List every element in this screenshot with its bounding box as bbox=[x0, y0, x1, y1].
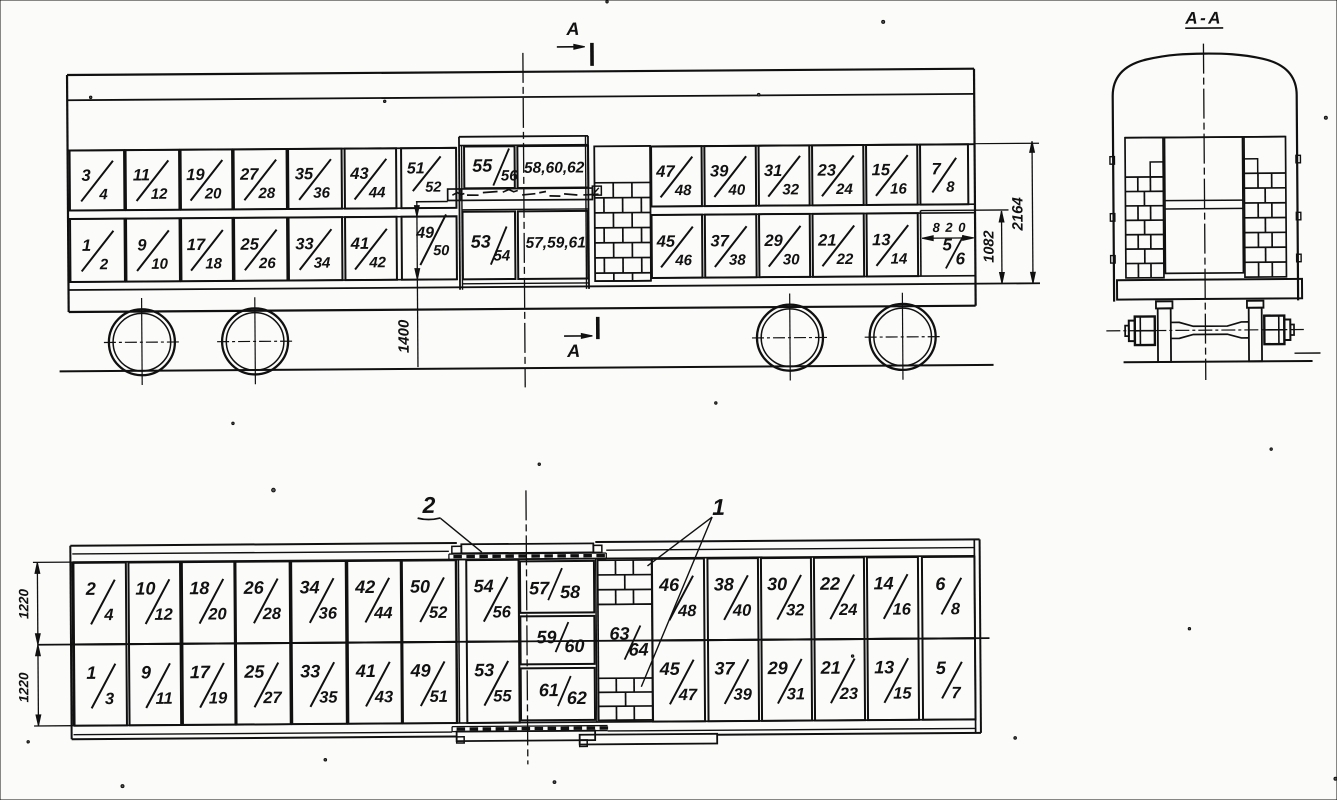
svg-text:3: 3 bbox=[81, 167, 90, 185]
svg-text:51: 51 bbox=[407, 160, 425, 177]
svg-text:1220: 1220 bbox=[16, 588, 31, 619]
svg-text:1082: 1082 bbox=[981, 230, 997, 262]
svg-text:19: 19 bbox=[209, 689, 228, 707]
svg-text:47: 47 bbox=[678, 686, 698, 704]
svg-text:1: 1 bbox=[86, 663, 96, 683]
svg-text:6: 6 bbox=[935, 574, 946, 594]
svg-text:6: 6 bbox=[956, 249, 966, 268]
svg-text:50: 50 bbox=[433, 243, 449, 259]
svg-text:51: 51 bbox=[430, 688, 448, 706]
svg-text:35: 35 bbox=[295, 165, 314, 183]
svg-text:58: 58 bbox=[560, 582, 580, 602]
svg-text:23: 23 bbox=[839, 685, 858, 703]
svg-text:11: 11 bbox=[133, 166, 150, 184]
svg-text:1: 1 bbox=[82, 237, 91, 255]
svg-text:A: A bbox=[566, 341, 580, 361]
svg-text:60: 60 bbox=[564, 636, 584, 656]
svg-text:61: 61 bbox=[539, 680, 559, 700]
svg-text:40: 40 bbox=[727, 182, 745, 199]
svg-text:15: 15 bbox=[872, 161, 891, 179]
svg-text:57: 57 bbox=[529, 578, 550, 598]
svg-text:37: 37 bbox=[710, 232, 729, 250]
svg-text:17: 17 bbox=[187, 236, 206, 254]
svg-text:9: 9 bbox=[137, 236, 147, 254]
svg-text:25: 25 bbox=[243, 662, 265, 682]
svg-text:A: A bbox=[565, 19, 579, 39]
svg-text:18: 18 bbox=[205, 255, 222, 272]
svg-text:21: 21 bbox=[820, 658, 841, 678]
svg-text:8 2 0: 8 2 0 bbox=[932, 220, 966, 235]
svg-text:7: 7 bbox=[951, 684, 961, 702]
svg-text:32: 32 bbox=[786, 601, 804, 619]
svg-text:7: 7 bbox=[932, 160, 942, 178]
svg-text:41: 41 bbox=[350, 235, 369, 253]
svg-text:64: 64 bbox=[628, 639, 648, 659]
svg-text:24: 24 bbox=[835, 181, 853, 198]
svg-text:56: 56 bbox=[501, 167, 518, 184]
svg-text:21: 21 bbox=[817, 232, 836, 250]
svg-text:33: 33 bbox=[300, 661, 320, 681]
svg-text:38: 38 bbox=[729, 252, 746, 269]
svg-text:63: 63 bbox=[609, 624, 629, 644]
svg-text:55: 55 bbox=[493, 687, 512, 705]
svg-text:28: 28 bbox=[257, 185, 275, 202]
svg-text:41: 41 bbox=[355, 661, 376, 681]
svg-text:55: 55 bbox=[472, 156, 493, 176]
svg-text:54: 54 bbox=[474, 576, 494, 596]
svg-text:23: 23 bbox=[817, 162, 836, 180]
svg-text:53: 53 bbox=[474, 660, 494, 680]
svg-text:16: 16 bbox=[890, 181, 907, 198]
svg-text:25: 25 bbox=[239, 236, 259, 254]
svg-text:19: 19 bbox=[186, 166, 205, 184]
svg-text:50: 50 bbox=[410, 577, 430, 597]
svg-text:10: 10 bbox=[151, 256, 168, 273]
svg-text:49: 49 bbox=[415, 225, 434, 242]
svg-text:5: 5 bbox=[942, 235, 952, 254]
svg-text:44: 44 bbox=[368, 184, 386, 201]
svg-text:36: 36 bbox=[319, 605, 338, 623]
svg-text:56: 56 bbox=[493, 603, 512, 621]
svg-text:38: 38 bbox=[714, 574, 734, 594]
svg-text:2: 2 bbox=[85, 579, 96, 599]
svg-text:11: 11 bbox=[156, 690, 173, 708]
svg-text:35: 35 bbox=[319, 689, 338, 707]
svg-text:12: 12 bbox=[151, 186, 168, 203]
svg-text:30: 30 bbox=[783, 251, 800, 268]
svg-text:2: 2 bbox=[422, 492, 436, 518]
svg-text:30: 30 bbox=[767, 574, 787, 594]
svg-text:59: 59 bbox=[536, 627, 556, 647]
svg-text:57,59,61: 57,59,61 bbox=[525, 234, 585, 251]
svg-text:22: 22 bbox=[836, 251, 854, 268]
svg-text:1: 1 bbox=[712, 494, 725, 520]
svg-text:42: 42 bbox=[354, 577, 375, 597]
svg-text:4: 4 bbox=[103, 606, 113, 624]
svg-text:20: 20 bbox=[204, 185, 222, 202]
svg-text:52: 52 bbox=[425, 180, 441, 196]
svg-text:9: 9 bbox=[141, 662, 151, 682]
svg-text:A-A: A-A bbox=[1184, 8, 1223, 27]
svg-text:29: 29 bbox=[763, 232, 783, 250]
svg-text:27: 27 bbox=[262, 689, 282, 707]
svg-text:37: 37 bbox=[714, 658, 735, 678]
svg-text:10: 10 bbox=[135, 578, 155, 598]
svg-text:15: 15 bbox=[893, 685, 912, 703]
svg-text:14: 14 bbox=[874, 573, 894, 593]
svg-text:14: 14 bbox=[891, 251, 908, 268]
svg-text:29: 29 bbox=[767, 658, 788, 678]
svg-text:45: 45 bbox=[656, 233, 676, 251]
svg-text:12: 12 bbox=[154, 606, 172, 624]
svg-text:2: 2 bbox=[99, 256, 109, 273]
svg-text:8: 8 bbox=[951, 600, 961, 618]
svg-text:62: 62 bbox=[567, 688, 587, 708]
svg-text:17: 17 bbox=[190, 662, 211, 682]
svg-text:53: 53 bbox=[471, 232, 491, 252]
svg-text:31: 31 bbox=[787, 685, 805, 703]
svg-text:5: 5 bbox=[936, 658, 947, 678]
svg-text:22: 22 bbox=[819, 574, 840, 594]
svg-text:49: 49 bbox=[410, 661, 431, 681]
svg-text:46: 46 bbox=[674, 252, 692, 269]
svg-text:58,60,62: 58,60,62 bbox=[524, 159, 585, 176]
svg-text:20: 20 bbox=[207, 605, 227, 623]
svg-text:34: 34 bbox=[314, 255, 331, 272]
svg-text:39: 39 bbox=[710, 162, 729, 180]
svg-text:1400: 1400 bbox=[396, 319, 413, 353]
svg-text:16: 16 bbox=[893, 601, 912, 619]
svg-text:33: 33 bbox=[295, 235, 313, 253]
svg-text:40: 40 bbox=[732, 602, 752, 620]
svg-text:52: 52 bbox=[429, 604, 447, 622]
svg-text:18: 18 bbox=[189, 578, 209, 598]
svg-text:48: 48 bbox=[674, 182, 692, 199]
svg-text:44: 44 bbox=[373, 604, 392, 622]
svg-text:45: 45 bbox=[659, 659, 681, 679]
svg-text:27: 27 bbox=[239, 166, 259, 184]
svg-text:39: 39 bbox=[733, 686, 752, 704]
svg-text:36: 36 bbox=[313, 185, 330, 202]
svg-text:8: 8 bbox=[946, 179, 955, 196]
svg-text:43: 43 bbox=[374, 688, 393, 706]
svg-text:42: 42 bbox=[368, 254, 386, 271]
svg-text:46: 46 bbox=[658, 575, 680, 595]
svg-text:43: 43 bbox=[349, 165, 368, 183]
svg-text:47: 47 bbox=[655, 163, 675, 181]
svg-text:13: 13 bbox=[872, 231, 890, 249]
svg-text:24: 24 bbox=[838, 601, 857, 619]
svg-text:28: 28 bbox=[262, 605, 282, 623]
svg-text:54: 54 bbox=[493, 247, 510, 264]
svg-text:1220: 1220 bbox=[16, 672, 31, 703]
svg-text:3: 3 bbox=[105, 690, 114, 708]
svg-text:26: 26 bbox=[258, 255, 276, 272]
svg-text:32: 32 bbox=[782, 181, 799, 198]
svg-text:2164: 2164 bbox=[1009, 196, 1026, 231]
svg-text:34: 34 bbox=[300, 577, 320, 597]
svg-text:4: 4 bbox=[98, 186, 108, 203]
svg-text:26: 26 bbox=[243, 578, 265, 598]
svg-text:13: 13 bbox=[874, 657, 894, 677]
svg-text:48: 48 bbox=[677, 602, 697, 620]
svg-text:31: 31 bbox=[764, 162, 782, 180]
